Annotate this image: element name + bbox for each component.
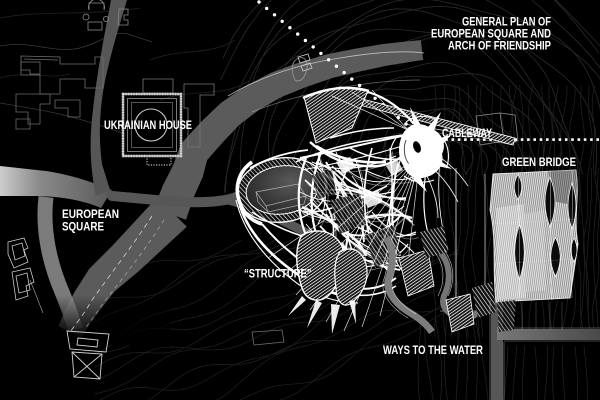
svg-text:UKRAINIAN HOUSE: UKRAINIAN HOUSE (104, 120, 192, 132)
svg-text:SQUARE: SQUARE (62, 222, 104, 234)
svg-text:ARCH OF FRIENDSHIP: ARCH OF FRIENDSHIP (448, 41, 551, 53)
svg-text:GENERAL PLAN OF: GENERAL PLAN OF (462, 17, 551, 29)
svg-text:CABLEWAY: CABLEWAY (442, 128, 492, 140)
svg-text:EUROPEAN: EUROPEAN (62, 209, 119, 221)
svg-text:EUROPEAN SQUARE AND: EUROPEAN SQUARE AND (431, 29, 551, 41)
svg-text:“STRUCTURE”: “STRUCTURE” (244, 269, 312, 281)
svg-text:GREEN BRIDGE: GREEN BRIDGE (502, 157, 576, 169)
svg-text:WAYS TO THE WATER: WAYS TO THE WATER (383, 345, 484, 357)
